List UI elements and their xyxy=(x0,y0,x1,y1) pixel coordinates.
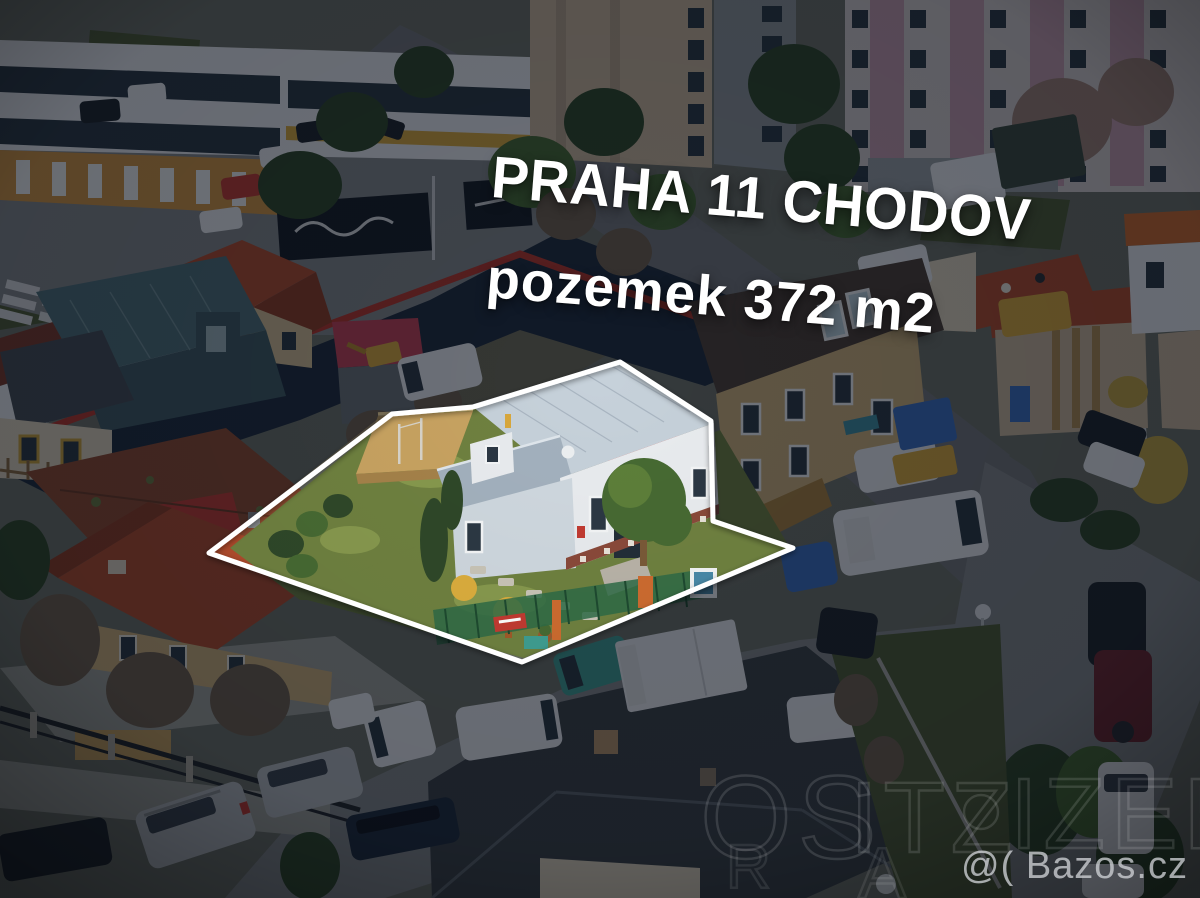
svg-text:R: R xyxy=(726,833,777,898)
photo-scene: OS ITZ IZER R A xyxy=(0,0,1200,898)
svg-text:A: A xyxy=(858,834,912,898)
bazos-watermark: @( Bazos.cz xyxy=(961,845,1188,888)
aerial-listing-photo: OS ITZ IZER R A PRAHA 11 CHODOV pozemek … xyxy=(0,0,1200,898)
